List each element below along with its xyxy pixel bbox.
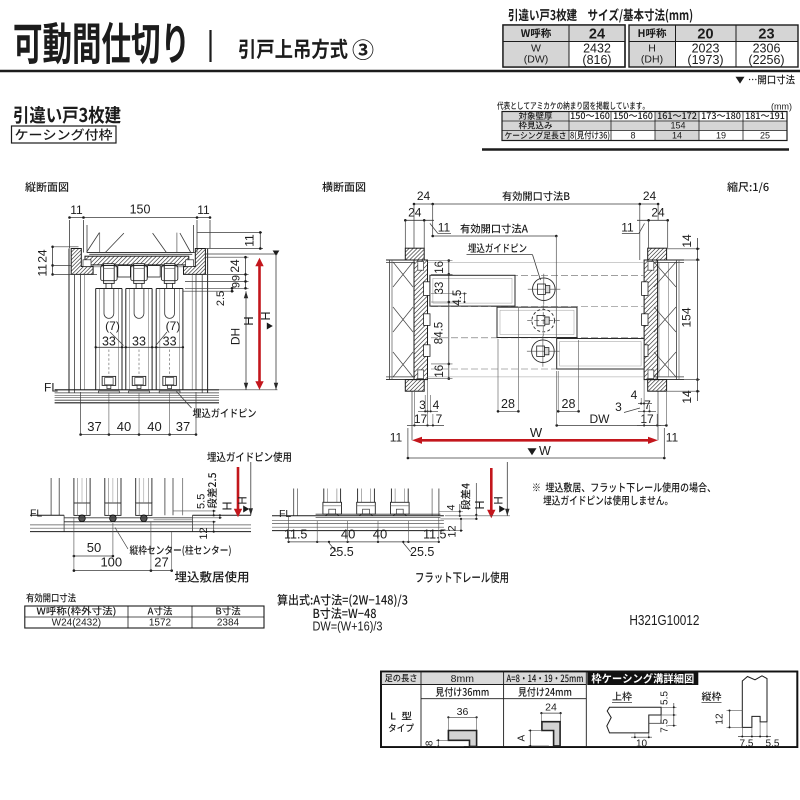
svg-text:W: W: [530, 425, 543, 440]
svg-text:11: 11: [70, 203, 83, 217]
svg-text:25.5: 25.5: [329, 545, 353, 559]
svg-text:11: 11: [36, 264, 50, 277]
svg-text:H: H: [221, 501, 235, 510]
svg-text:4: 4: [433, 398, 440, 412]
svg-text:19: 19: [716, 131, 726, 141]
svg-text:12: 12: [447, 525, 459, 537]
svg-text:2384: 2384: [217, 618, 240, 629]
svg-text:11.5: 11.5: [423, 528, 446, 542]
svg-text:40: 40: [147, 419, 161, 434]
svg-text:H: H: [473, 500, 487, 509]
svg-text:H: H: [241, 316, 256, 325]
svg-text:5.5: 5.5: [196, 494, 208, 509]
svg-text:11: 11: [243, 234, 257, 247]
svg-text:2.5: 2.5: [215, 291, 227, 306]
svg-text:FL: FL: [30, 508, 42, 520]
svg-text:100: 100: [100, 555, 122, 570]
svg-text:8: 8: [630, 131, 635, 141]
svg-text:7.5: 7.5: [660, 718, 671, 732]
svg-text:8: 8: [425, 740, 436, 746]
svg-text:5.5: 5.5: [660, 691, 671, 705]
svg-text:150: 150: [130, 203, 151, 217]
svg-text:(7): (7): [105, 319, 120, 333]
svg-text:A: A: [517, 735, 528, 742]
svg-text:24: 24: [545, 702, 557, 714]
svg-text:24: 24: [36, 249, 50, 263]
svg-text:36: 36: [457, 706, 469, 718]
svg-text:28: 28: [562, 397, 576, 411]
svg-text:25.5: 25.5: [410, 545, 434, 559]
svg-text:H: H: [237, 496, 249, 504]
svg-text:27: 27: [154, 555, 168, 570]
svg-text:24: 24: [417, 189, 431, 203]
svg-text:H: H: [493, 496, 505, 504]
svg-text:50: 50: [87, 540, 101, 555]
svg-text:3: 3: [615, 400, 622, 414]
svg-text:(DH): (DH): [641, 54, 663, 66]
svg-text:4: 4: [631, 388, 638, 402]
svg-text:DW=(W+16)/3: DW=(W+16)/3: [313, 620, 383, 634]
svg-text:40: 40: [341, 527, 355, 542]
svg-text:12: 12: [715, 713, 726, 725]
svg-text:11: 11: [438, 221, 451, 235]
svg-text:(mm): (mm): [771, 102, 792, 112]
svg-text:1572: 1572: [149, 618, 172, 629]
svg-text:FL: FL: [44, 381, 58, 395]
svg-text:5.5: 5.5: [766, 739, 780, 750]
svg-text:33: 33: [163, 335, 177, 349]
svg-text:37: 37: [176, 419, 190, 434]
svg-text:4: 4: [446, 504, 458, 510]
svg-text:154: 154: [670, 121, 685, 131]
svg-text:17: 17: [640, 412, 654, 426]
svg-text:14: 14: [672, 131, 682, 141]
svg-text:37: 37: [87, 419, 101, 434]
svg-text:25: 25: [760, 131, 770, 141]
svg-text:(7): (7): [166, 319, 181, 333]
svg-text:14: 14: [680, 390, 694, 404]
svg-text:33: 33: [102, 335, 116, 349]
svg-text:(DW): (DW): [524, 54, 549, 66]
svg-text:W: W: [539, 444, 551, 458]
svg-text:24: 24: [408, 205, 422, 219]
svg-text:DH: DH: [229, 328, 243, 345]
svg-text:84.5: 84.5: [433, 322, 445, 344]
svg-text:7: 7: [436, 412, 443, 426]
svg-text:40: 40: [117, 419, 131, 434]
svg-text:11: 11: [621, 221, 634, 235]
svg-text:20: 20: [697, 27, 713, 43]
svg-text:(816): (816): [582, 53, 611, 67]
svg-text:4.5: 4.5: [452, 290, 464, 306]
svg-text:40: 40: [373, 527, 387, 542]
svg-text:FL: FL: [279, 508, 291, 520]
svg-text:9: 9: [231, 275, 243, 281]
svg-text:154: 154: [680, 307, 694, 327]
svg-text:11.5: 11.5: [284, 528, 307, 542]
svg-text:10: 10: [636, 739, 648, 750]
svg-text:17: 17: [414, 412, 428, 426]
svg-text:7: 7: [644, 398, 651, 412]
svg-text:(1973): (1973): [687, 53, 723, 67]
svg-text:11: 11: [390, 431, 403, 445]
svg-text:11: 11: [197, 203, 210, 217]
svg-text:28: 28: [501, 397, 515, 411]
svg-text:H: H: [259, 311, 273, 320]
svg-text:12: 12: [198, 527, 210, 539]
svg-text:11: 11: [666, 431, 679, 445]
svg-text:24: 24: [589, 27, 605, 43]
svg-text:W24(2432): W24(2432): [52, 618, 101, 629]
svg-text:7.5: 7.5: [740, 739, 754, 750]
svg-text:(2256): (2256): [748, 53, 784, 67]
svg-text:8mm: 8mm: [451, 673, 475, 685]
svg-text:23: 23: [758, 27, 774, 43]
svg-text:33: 33: [132, 335, 146, 349]
svg-text:14: 14: [680, 234, 694, 248]
svg-text:24: 24: [643, 189, 657, 203]
svg-text:DW: DW: [590, 412, 611, 426]
svg-text:33: 33: [434, 282, 446, 295]
svg-text:24: 24: [228, 259, 242, 273]
svg-text:16: 16: [434, 365, 446, 378]
svg-text:16: 16: [434, 261, 446, 274]
svg-text:H321G10012: H321G10012: [629, 613, 699, 629]
